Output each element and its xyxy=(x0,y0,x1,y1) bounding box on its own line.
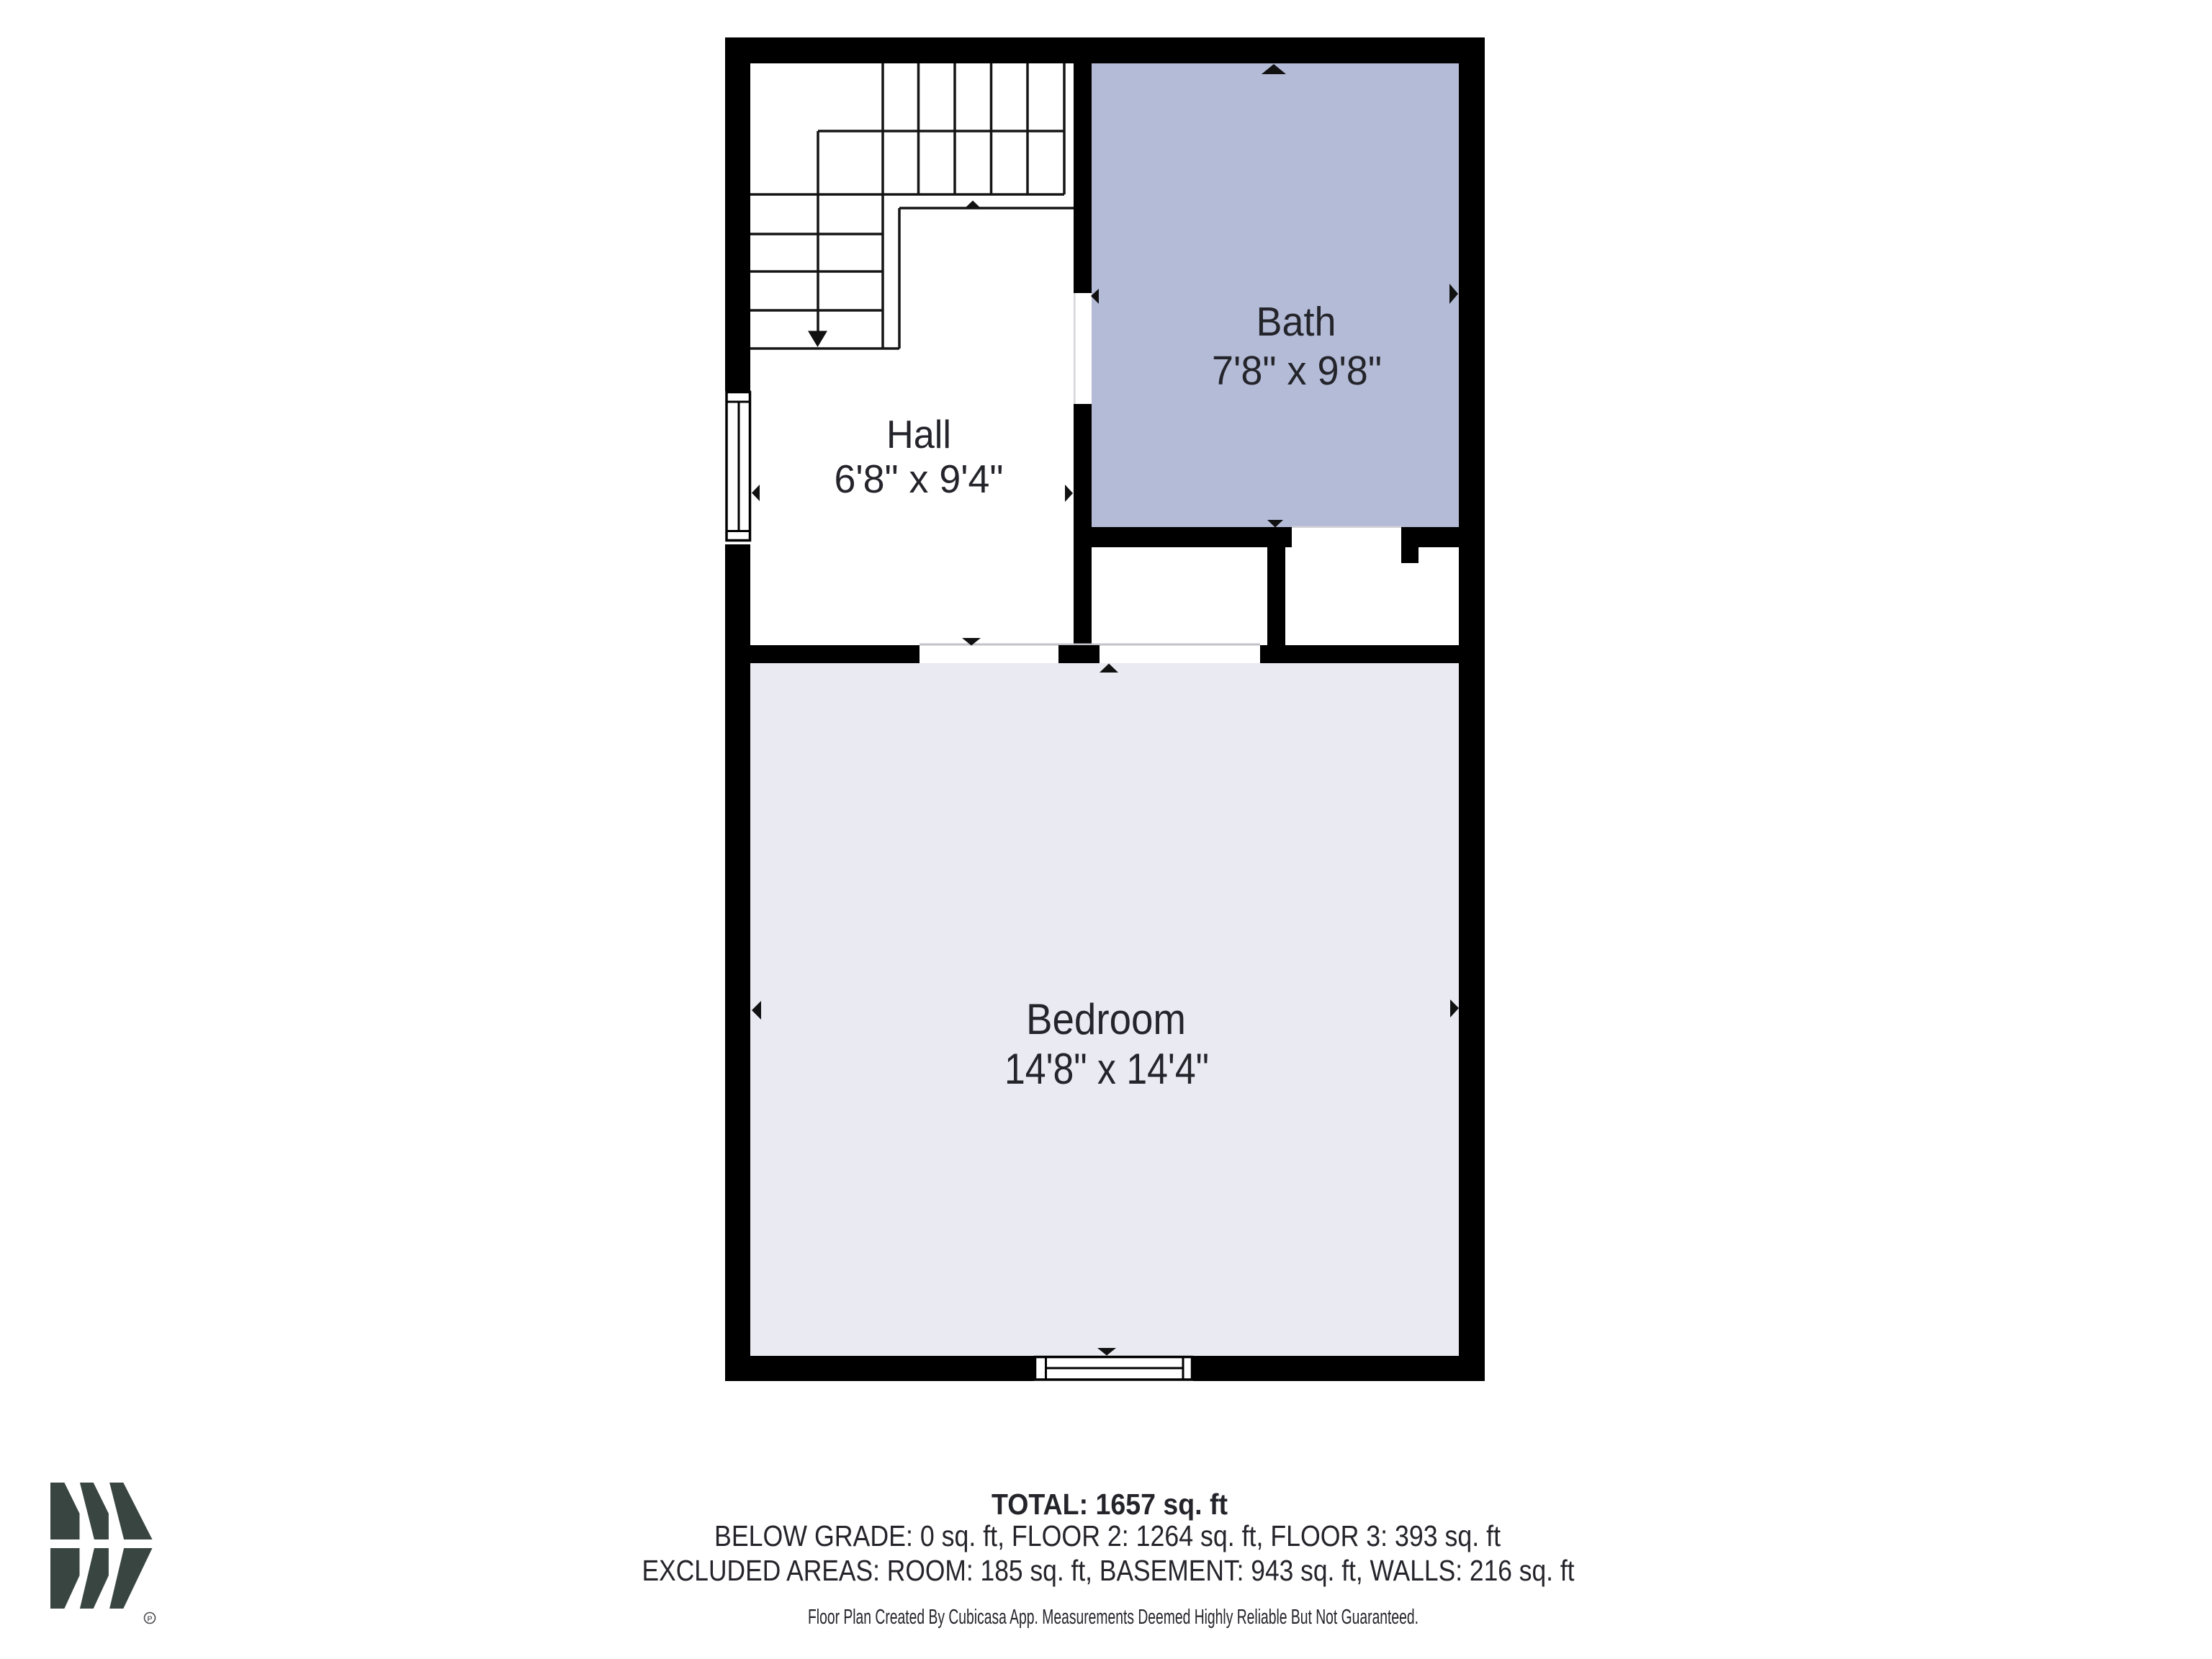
svg-text:14'8" x 14'4": 14'8" x 14'4" xyxy=(1004,1045,1209,1093)
svg-text:TOTAL: 1657 sq. ft: TOTAL: 1657 sq. ft xyxy=(992,1488,1228,1521)
svg-text:EXCLUDED AREAS: ROOM: 185 sq.: EXCLUDED AREAS: ROOM: 185 sq. ft, BASEME… xyxy=(642,1554,1575,1587)
svg-text:Hall: Hall xyxy=(886,412,951,457)
svg-text:BELOW GRADE: 0 sq. ft, FLOOR 2: BELOW GRADE: 0 sq. ft, FLOOR 2: 1264 sq.… xyxy=(714,1519,1501,1552)
svg-text:7'8" x 9'8": 7'8" x 9'8" xyxy=(1212,348,1382,394)
svg-text:Bath: Bath xyxy=(1256,299,1336,345)
svg-text:Floor Plan Created By Cubicasa: Floor Plan Created By Cubicasa App. Meas… xyxy=(808,1606,1419,1629)
svg-text:6'8" x 9'4": 6'8" x 9'4" xyxy=(835,457,1004,501)
svg-text:Bedroom: Bedroom xyxy=(1026,995,1186,1043)
svg-text:P: P xyxy=(147,1615,152,1624)
